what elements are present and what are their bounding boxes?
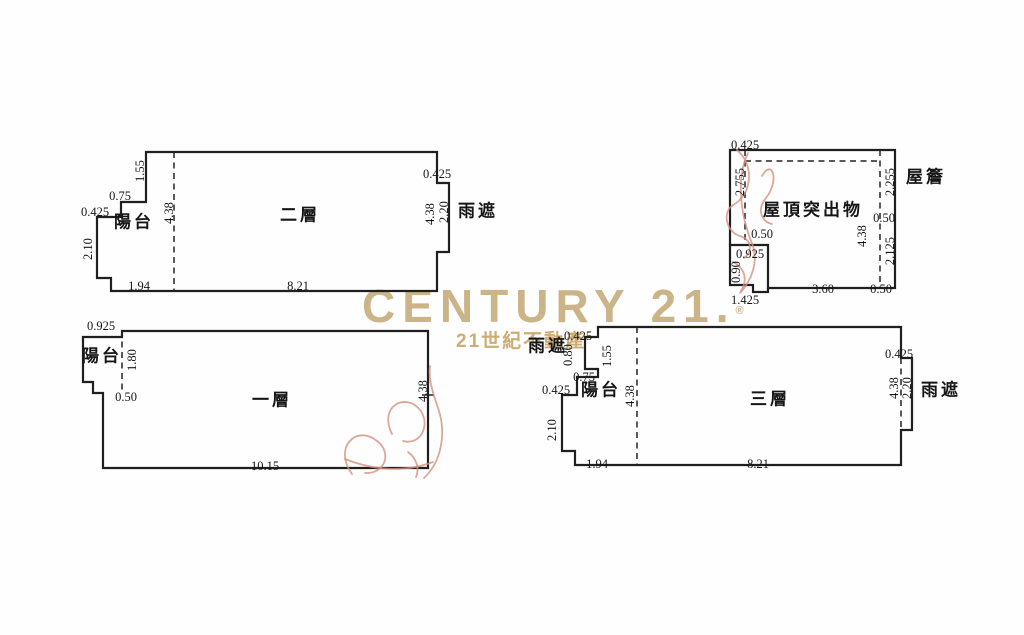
floor3-dimension-label: 2.20 (901, 377, 914, 399)
floorplan-sheet: CENTURY 21.® 21世紀不動產 (0, 0, 1024, 635)
floor2-dimension-label: 4.38 (424, 203, 437, 225)
floor1-dimension-label: 1.80 (126, 349, 139, 371)
labels-layer: 1.550.750.425陽台4.38二層2.101.948.210.4254.… (0, 0, 1024, 635)
roof_projection-dimension-label: 0.90 (730, 261, 743, 283)
floor2-name-label: 陽台 (114, 214, 154, 231)
floor2-name-label: 雨遮 (458, 203, 498, 220)
floor3-dimension-label: 4.38 (624, 385, 637, 407)
floor3-dimension-label: 1.94 (586, 458, 608, 471)
floor3-dimension-label: 0.425 (885, 348, 913, 361)
floor2-dimension-label: 8.21 (287, 280, 309, 293)
floor3-dimension-label: 0.80 (562, 344, 575, 366)
roof_projection-dimension-label: 2.755 (734, 168, 747, 196)
floor3-dimension-label: 0.425 (564, 330, 592, 343)
floor3-name-label: 三層 (750, 391, 790, 408)
floor2-dimension-label: 2.10 (82, 238, 95, 260)
roof_projection-dimension-label: 0.50 (751, 228, 773, 241)
roof_projection-dimension-label: 2.125 (884, 237, 897, 265)
floor3-name-label: 雨遮 (921, 382, 961, 399)
floor2-dimension-label: 1.94 (128, 280, 150, 293)
floor3-dimension-label: 8.21 (747, 458, 769, 471)
floor3-name-label: 陽台 (581, 382, 621, 399)
floor3-dimension-label: 1.55 (601, 345, 614, 367)
floor2-dimension-label: 1.55 (134, 160, 147, 182)
floor3-dimension-label: 0.425 (542, 384, 570, 397)
roof_projection-dimension-label: 4.38 (856, 225, 869, 247)
floor2-dimension-label: 0.425 (423, 168, 451, 181)
roof_projection-dimension-label: 0.925 (736, 248, 764, 261)
floor2-dimension-label: 0.75 (109, 190, 131, 203)
roof_projection-dimension-label: 3.60 (812, 283, 834, 296)
roof_projection-dimension-label: 0.50 (873, 212, 895, 225)
floor3-dimension-label: 2.10 (546, 419, 559, 441)
floor2-name-label: 二層 (280, 207, 320, 224)
floor1-dimension-label: 10.15 (251, 460, 279, 473)
roof_projection-name-label: 屋頂突出物 (763, 202, 863, 219)
floor1-dimension-label: 0.925 (87, 320, 115, 333)
floor2-dimension-label: 0.425 (81, 206, 109, 219)
roof_projection-dimension-label: 0.50 (870, 283, 892, 296)
floor1-dimension-label: 4.38 (417, 380, 430, 402)
floor1-name-label: 陽台 (82, 348, 122, 365)
floor1-name-label: 一層 (252, 392, 292, 409)
floor3-dimension-label: 4.38 (888, 377, 901, 399)
floor2-dimension-label: 4.38 (163, 202, 176, 224)
roof_projection-name-label: 屋簷 (906, 169, 946, 186)
floor2-dimension-label: 2.20 (438, 201, 451, 223)
roof_projection-dimension-label: 0.425 (731, 139, 759, 152)
roof_projection-dimension-label: 1.425 (731, 294, 759, 307)
roof_projection-dimension-label: 2.255 (884, 168, 897, 196)
floor1-dimension-label: 0.50 (115, 391, 137, 404)
